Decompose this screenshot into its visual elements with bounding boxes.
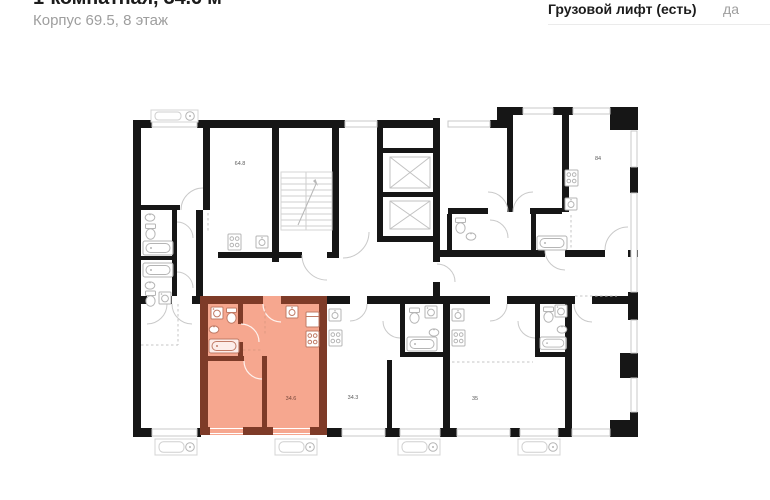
apartment-34-3[interactable]: [330, 304, 443, 428]
label-apartment-34-6: 34.6: [286, 396, 297, 402]
floor-plan: 64.8 84 34.6 34.3 35: [0, 0, 770, 500]
apartment-card: 1-комнатная, 34.6 м² Корпус 69.5, 8 этаж…: [0, 0, 770, 500]
ac-unit-4: [518, 439, 560, 455]
ac-unit-3: [398, 439, 440, 455]
apartment-34-6-highlighted: [200, 296, 327, 435]
apartment-35[interactable]: [450, 304, 565, 428]
stairwell: [281, 172, 332, 230]
balcony-top: [151, 110, 198, 122]
ac-unit-2: [275, 439, 317, 455]
apartment-64-8[interactable]: [207, 128, 272, 256]
apartment-84[interactable]: [513, 112, 630, 250]
ac-unit-1: [155, 439, 197, 455]
